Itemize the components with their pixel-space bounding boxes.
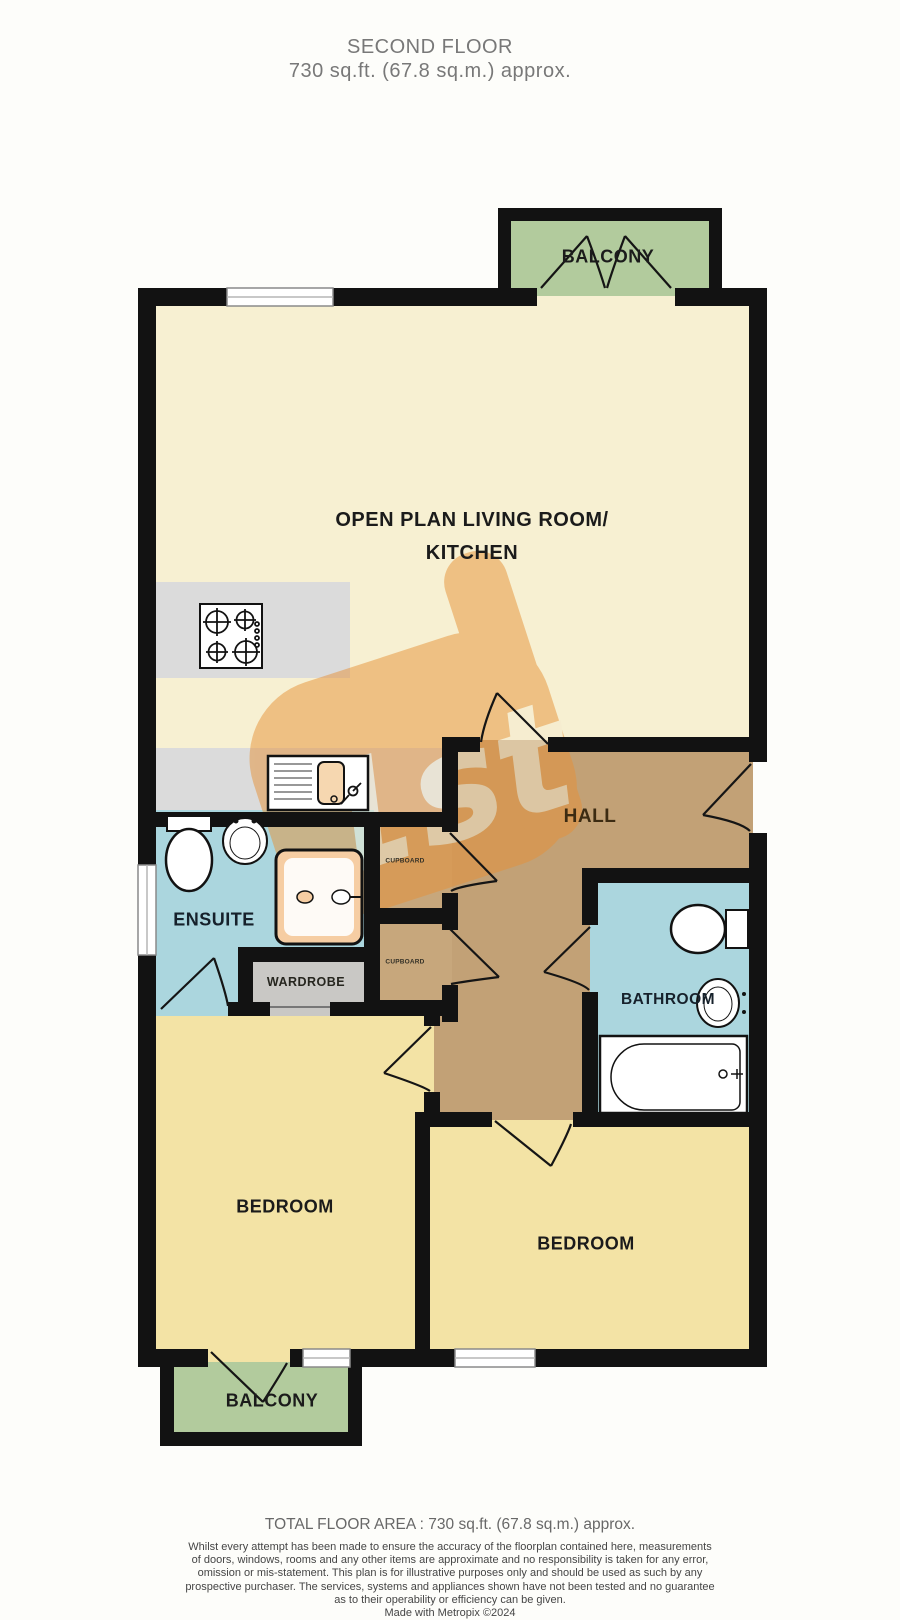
- hob-icon: [200, 604, 262, 668]
- total-floor-area: TOTAL FLOOR AREA : 730 sq.ft. (67.8 sq.m…: [0, 1516, 900, 1534]
- bedroom-right-label: BEDROOM: [537, 1234, 635, 1255]
- window-bottom-right: [455, 1349, 535, 1367]
- window-left: [138, 865, 156, 955]
- toilet-icon: [671, 905, 748, 953]
- hall-label: HALL: [564, 806, 617, 828]
- window-top: [227, 288, 333, 306]
- window-bottom-left: [303, 1349, 350, 1367]
- balcony-doorway: [537, 296, 675, 306]
- kitchen-sink-icon: [268, 756, 368, 810]
- living-room-label: OPEN PLAN LIVING ROOM/ KITCHEN: [335, 504, 608, 570]
- wardrobe-label: WARDROBE: [267, 975, 345, 989]
- floorplan-page: SECOND FLOOR 730 sq.ft. (67.8 sq.m.) app…: [0, 0, 900, 1620]
- basin-icon: [223, 818, 267, 864]
- floorplan-drawing: 1st: [0, 0, 900, 1620]
- toilet-icon: [166, 816, 212, 891]
- disclaimer: Whilst every attempt has been made to en…: [0, 1541, 900, 1620]
- balcony-top-label: BALCONY: [562, 247, 655, 268]
- bathroom-label: BATHROOM: [621, 991, 715, 1009]
- bathtub-icon: [600, 1036, 747, 1113]
- bedroom-left-label: BEDROOM: [236, 1197, 334, 1218]
- metropix-credit: Made with Metropix ©2024: [0, 1607, 900, 1620]
- cupboard-bottom-label: CUPBOARD: [385, 959, 424, 966]
- ensuite-label: ENSUITE: [173, 910, 255, 931]
- balcony-bottom-label: BALCONY: [226, 1391, 319, 1412]
- shower-icon: [276, 850, 362, 944]
- cupboard-top-label: CUPBOARD: [385, 858, 424, 865]
- bedroom-left-floor: [150, 1016, 434, 1361]
